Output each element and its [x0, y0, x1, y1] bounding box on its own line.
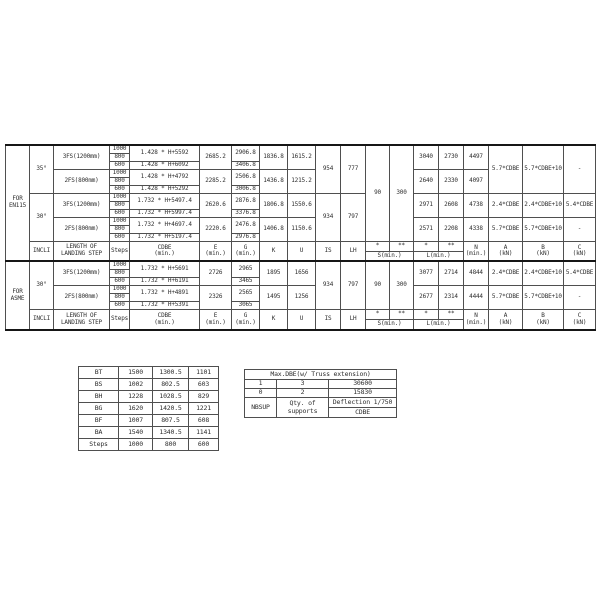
cell-fs-label: 2FS(800mm) [54, 169, 110, 193]
dim-value: 600 [189, 439, 219, 451]
header-a: A (kN) [489, 310, 523, 330]
cell-step: 1000 [110, 286, 130, 294]
cell-group-en115: FOR EN115 [6, 145, 30, 261]
cell-g: 2876.8 [232, 193, 260, 209]
cell-n: 4097 [464, 169, 489, 193]
cell-g: 2965 [232, 261, 260, 277]
cell-fs-label: 2FS(800mm) [54, 286, 110, 310]
cell-cdbe-formula: 1.732 * H+4697.4 [130, 217, 200, 233]
header-l-min: L(min.) [414, 320, 464, 330]
cell-fs-label: 3FS(1200mm) [54, 193, 110, 217]
cell-l-star: 3077 [414, 261, 439, 285]
cell-l-dstar: 2608 [439, 193, 464, 217]
cell-k: 1836.8 [260, 145, 288, 169]
cell-s-dstar: 300 [390, 261, 414, 309]
cell-c: - [564, 286, 596, 310]
cell-cdbe-formula: 1.428 * H+5592 [130, 145, 200, 161]
header-landing-step: LENGTH OF LANDING STEP [54, 310, 110, 330]
header-is: IS [316, 241, 341, 261]
cell-step: 800 [110, 177, 130, 185]
cell-step: 800 [110, 153, 130, 161]
cell-e: 2685.2 [200, 145, 232, 169]
cell-k: 1895 [260, 261, 288, 285]
header-l-dstar: ** [439, 310, 464, 320]
cell-a: 5.7*CDBE [489, 145, 523, 193]
header-e: E (min.) [200, 241, 232, 261]
header-n-line2: (min.) [464, 320, 488, 327]
dim-value: 603 [189, 379, 219, 391]
header-c-line2: (kN) [564, 320, 595, 327]
cell-g: 2906.8 [232, 145, 260, 161]
dim-value: 1221 [189, 403, 219, 415]
cell-g: 3376.8 [232, 209, 260, 217]
header-c-line2: (kN) [564, 251, 595, 258]
cell-a: 2.4*CDBE [489, 193, 523, 217]
cell-l-dstar: 2314 [439, 286, 464, 310]
cell-step: 600 [110, 209, 130, 217]
cell-g: 2476.8 [232, 217, 260, 233]
cell-step: 800 [110, 225, 130, 233]
dim-label: BG [79, 403, 119, 415]
cell-e: 2220.6 [200, 217, 232, 241]
cell-fs-label: 2FS(800mm) [54, 217, 110, 241]
max-dbe-title: Max.DBE(w/ Truss extension) [245, 370, 397, 380]
header-lh: LH [341, 241, 366, 261]
cell-step: 800 [110, 270, 130, 278]
dim-value: 1101 [189, 367, 219, 379]
dim-value: 1540 [119, 427, 153, 439]
cell-cdbe-formula: 1.732 * H+6191 [130, 278, 200, 286]
cell-l-dstar: 2730 [439, 145, 464, 169]
dim-value: 1500 [119, 367, 153, 379]
header-g-line2: (min.) [232, 251, 259, 258]
header-n: N (min.) [464, 310, 489, 330]
cell-cdbe-formula: 1.732 * H+5497.4 [130, 193, 200, 209]
header-steps: Steps [110, 310, 130, 330]
cell-n: 4497 [464, 145, 489, 169]
cell-l-star: 2640 [414, 169, 439, 193]
cell-c: - [564, 145, 596, 193]
header-a: A (kN) [489, 241, 523, 261]
cell-e: 2326 [200, 286, 232, 310]
cell-g: 3465 [232, 278, 260, 286]
cell-cdbe-formula: 1.732 * H+5391 [130, 302, 200, 310]
cell-k: 1495 [260, 286, 288, 310]
header-b: B (kN) [523, 310, 564, 330]
header-lh: LH [341, 310, 366, 330]
dim-value: 807.5 [153, 415, 189, 427]
header-e: E (min.) [200, 310, 232, 330]
dim-value: 1007 [119, 415, 153, 427]
cell-step: 1000 [110, 261, 130, 269]
dimension-table-wrapper: BT 1500 1300.5 1101 BS 1002 802.5 603 BH… [78, 366, 219, 451]
cell-fs-label: 3FS(1200mm) [54, 145, 110, 169]
dim-value: 802.5 [153, 379, 189, 391]
cell-lh: 777 [341, 145, 366, 193]
dim-value: 829 [189, 391, 219, 403]
header-n-line2: (min.) [464, 251, 488, 258]
cell-step: 600 [110, 302, 130, 310]
cell-cdbe-formula: 1.732 * H+5197.4 [130, 233, 200, 241]
cell-c: 5.4*CDBE [564, 193, 596, 217]
header-l-star: * [414, 310, 439, 320]
cell-g: 2506.8 [232, 169, 260, 185]
header-a-line2: (kN) [489, 251, 522, 258]
dbe-footer-qty: Qty. of supports [277, 398, 329, 418]
cell-g: 3065 [232, 302, 260, 310]
header-l-min: L(min.) [414, 251, 464, 261]
cell-step: 1000 [110, 217, 130, 225]
cell-g: 2976.8 [232, 233, 260, 241]
header-steps: Steps [110, 241, 130, 261]
header-is: IS [316, 310, 341, 330]
max-dbe-table-wrapper: Max.DBE(w/ Truss extension) 1 3 30600 0 … [244, 369, 397, 418]
header-e-line2: (min.) [200, 251, 231, 258]
header-b: B (kN) [523, 241, 564, 261]
header-a-line2: (kN) [489, 320, 522, 327]
dbe-cell: 1 [245, 380, 277, 389]
cell-group-asme: FOR ASME [6, 261, 30, 329]
cell-angle-30: 30° [30, 261, 54, 309]
cell-step: 600 [110, 185, 130, 193]
cell-a: 2.4*CDBE [489, 261, 523, 285]
header-cdbe: CDBE (min.) [130, 310, 200, 330]
cell-step: 1000 [110, 169, 130, 177]
dim-value: 1420.5 [153, 403, 189, 415]
cell-e: 2285.2 [200, 169, 232, 193]
cell-lh: 797 [341, 193, 366, 241]
cell-step: 1000 [110, 193, 130, 201]
cell-step: 800 [110, 201, 130, 209]
cell-g: 2565 [232, 286, 260, 302]
cell-fs-label: 3FS(1200mm) [54, 261, 110, 285]
dim-value: 1000 [119, 439, 153, 451]
cell-l-star: 2571 [414, 217, 439, 241]
header-l-dstar: ** [439, 241, 464, 251]
cell-is: 934 [316, 261, 341, 309]
dim-value: 1028.5 [153, 391, 189, 403]
cell-e: 2726 [200, 261, 232, 285]
cell-n: 4444 [464, 286, 489, 310]
dbe-cell: 15830 [329, 389, 397, 398]
dim-value: 1002 [119, 379, 153, 391]
header-u: U [288, 310, 316, 330]
header-u: U [288, 241, 316, 261]
header-incli: INCLI [30, 310, 54, 330]
cell-is: 934 [316, 193, 341, 241]
dim-label: BT [79, 367, 119, 379]
cell-step: 600 [110, 233, 130, 241]
header-b-line2: (kN) [523, 320, 563, 327]
cell-k: 1406.8 [260, 217, 288, 241]
header-k: K [260, 241, 288, 261]
cell-a: 5.7*CDBE [489, 286, 523, 310]
header-n: N (min.) [464, 241, 489, 261]
dbe-cell: 0 [245, 389, 277, 398]
cell-u: 1256 [288, 286, 316, 310]
cell-cdbe-formula: 1.732 * H+4891 [130, 286, 200, 302]
header-c: C (kN) [564, 241, 596, 261]
main-spec-table: FOR EN115 35° 3FS(1200mm) 1000 1.428 * H… [5, 144, 596, 331]
cell-is: 954 [316, 145, 341, 193]
header-l-star: * [414, 241, 439, 251]
dim-value: 800 [153, 439, 189, 451]
spec-table-wrapper: FOR EN115 35° 3FS(1200mm) 1000 1.428 * H… [5, 144, 596, 331]
cell-b: 2.4*CDBE+10 [523, 193, 564, 217]
header-s-min: S(min.) [366, 251, 414, 261]
cell-g: 3406.8 [232, 161, 260, 169]
header-s-min: S(min.) [366, 320, 414, 330]
dim-value: 1300.5 [153, 367, 189, 379]
header-e-line2: (min.) [200, 320, 231, 327]
cell-step: 1000 [110, 145, 130, 153]
dim-value: 1228 [119, 391, 153, 403]
dim-value: 608 [189, 415, 219, 427]
cell-n: 4738 [464, 193, 489, 217]
cell-l-star: 2971 [414, 193, 439, 217]
dim-value: 1620 [119, 403, 153, 415]
cell-g: 3006.8 [232, 185, 260, 193]
dimension-table: BT 1500 1300.5 1101 BS 1002 802.5 603 BH… [78, 366, 219, 451]
header-c: C (kN) [564, 310, 596, 330]
header-s-dstar: ** [390, 310, 414, 320]
cell-s-star: 90 [366, 261, 390, 309]
header-g-line2: (min.) [232, 320, 259, 327]
cell-n: 4338 [464, 217, 489, 241]
header-s-star: * [366, 310, 390, 320]
header-cdbe-line2: (min.) [130, 320, 199, 327]
cell-k: 1436.8 [260, 169, 288, 193]
header-s-dstar: ** [390, 241, 414, 251]
header-g: G (min.) [232, 310, 260, 330]
max-dbe-table: Max.DBE(w/ Truss extension) 1 3 30600 0 … [244, 369, 397, 418]
dim-value: 1340.5 [153, 427, 189, 439]
cell-cdbe-formula: 1.732 * H+5691 [130, 261, 200, 277]
header-g: G (min.) [232, 241, 260, 261]
cell-u: 1550.6 [288, 193, 316, 217]
cell-c: 5.4*CDBE [564, 261, 596, 285]
dbe-footer-cdbe: CDBE [329, 408, 397, 418]
cell-c: - [564, 217, 596, 241]
dbe-cell: 3 [277, 380, 329, 389]
cell-step: 600 [110, 278, 130, 286]
dim-label: BF [79, 415, 119, 427]
dbe-cell: 30600 [329, 380, 397, 389]
cell-a: 5.7*CDBE [489, 217, 523, 241]
dbe-footer-deflection: Deflection 1/750 [329, 398, 397, 408]
cell-u: 1150.6 [288, 217, 316, 241]
cell-u: 1215.2 [288, 169, 316, 193]
header-k: K [260, 310, 288, 330]
cell-b: 5.7*CDBE+10 [523, 145, 564, 193]
cell-b: 5.7*CDBE+10 [523, 217, 564, 241]
cell-b: 5.7*CDBE+10 [523, 286, 564, 310]
cell-l-dstar: 2208 [439, 217, 464, 241]
header-cdbe: CDBE (min.) [130, 241, 200, 261]
cell-k: 1806.8 [260, 193, 288, 217]
cell-cdbe-formula: 1.428 * H+4792 [130, 169, 200, 185]
dim-label: Steps [79, 439, 119, 451]
cell-cdbe-formula: 1.732 * H+5997.4 [130, 209, 200, 217]
cell-step: 600 [110, 161, 130, 169]
cell-s-star: 90 [366, 145, 390, 241]
cell-l-dstar: 2330 [439, 169, 464, 193]
header-incli: INCLI [30, 241, 54, 261]
cell-step: 800 [110, 294, 130, 302]
cell-u: 1656 [288, 261, 316, 285]
cell-u: 1615.2 [288, 145, 316, 169]
cell-lh: 797 [341, 261, 366, 309]
cell-angle-35: 35° [30, 145, 54, 193]
dim-label: BH [79, 391, 119, 403]
dim-label: BA [79, 427, 119, 439]
dim-label: BS [79, 379, 119, 391]
cell-e: 2620.6 [200, 193, 232, 217]
cell-l-star: 2677 [414, 286, 439, 310]
dbe-cell: 2 [277, 389, 329, 398]
dim-value: 1141 [189, 427, 219, 439]
cell-n: 4844 [464, 261, 489, 285]
cell-b: 2.4*CDBE+10 [523, 261, 564, 285]
header-s-star: * [366, 241, 390, 251]
cell-angle-30: 30° [30, 193, 54, 241]
header-landing-step: LENGTH OF LANDING STEP [54, 241, 110, 261]
cell-cdbe-formula: 1.428 * H+5292 [130, 185, 200, 193]
header-cdbe-line2: (min.) [130, 251, 199, 258]
cell-l-star: 3040 [414, 145, 439, 169]
cell-l-dstar: 2714 [439, 261, 464, 285]
header-b-line2: (kN) [523, 251, 563, 258]
dbe-footer-nbsup: NBSUP [245, 398, 277, 418]
cell-s-dstar: 300 [390, 145, 414, 241]
cell-cdbe-formula: 1.428 * H+6092 [130, 161, 200, 169]
